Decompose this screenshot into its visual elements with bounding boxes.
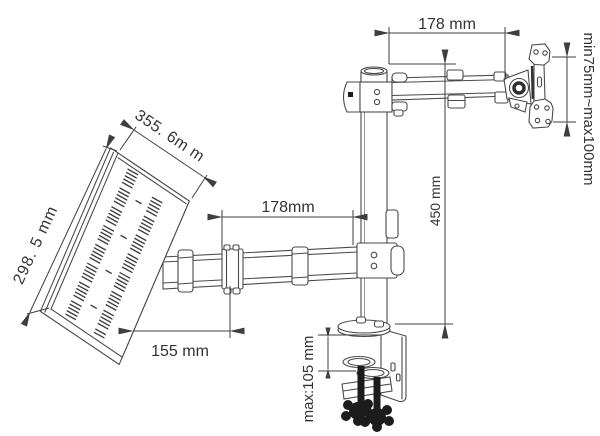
- laptop-tray: [40, 148, 189, 365]
- lower-arm-collar: [357, 243, 404, 278]
- base-bolt: [357, 317, 366, 323]
- cable-clip: [178, 250, 193, 292]
- clamp-range-label: max:105 mm: [300, 336, 317, 423]
- dim-vesa-range: min75mm~max100mm: [552, 33, 597, 186]
- desk-clamp: [338, 317, 406, 432]
- dim-lower-arm-length: 178mm: [222, 199, 353, 250]
- pole-height-label: 450 mm: [427, 176, 443, 227]
- upper-arm-length-label: 178 mm: [418, 16, 476, 33]
- cable-clip: [448, 95, 465, 108]
- upper-arm-collar: [344, 82, 393, 112]
- tray-depth-label: 298. 5 mm: [10, 203, 61, 287]
- pole-cap: [360, 67, 388, 84]
- vesa-plate: [529, 44, 553, 128]
- pole-spacer-block: [386, 210, 398, 238]
- diagram-canvas: 178 mm min75mm~max100mm 450 mm 178mm 355…: [0, 0, 600, 436]
- mount-diagram: 178 mm min75mm~max100mm 450 mm 178mm 355…: [0, 0, 600, 436]
- clamp-knob: [360, 405, 394, 432]
- tray-offset-label: 155 mm: [151, 343, 209, 360]
- cable-clip: [447, 70, 463, 80]
- base-bolt: [375, 321, 384, 327]
- pressure-pad: [343, 357, 375, 368]
- arm-end-bracket: [222, 245, 243, 294]
- vesa-range-label: min75mm~max100mm: [580, 33, 597, 186]
- arm-lug-top: [392, 73, 407, 82]
- lower-arm-length-label: 178mm: [261, 199, 314, 216]
